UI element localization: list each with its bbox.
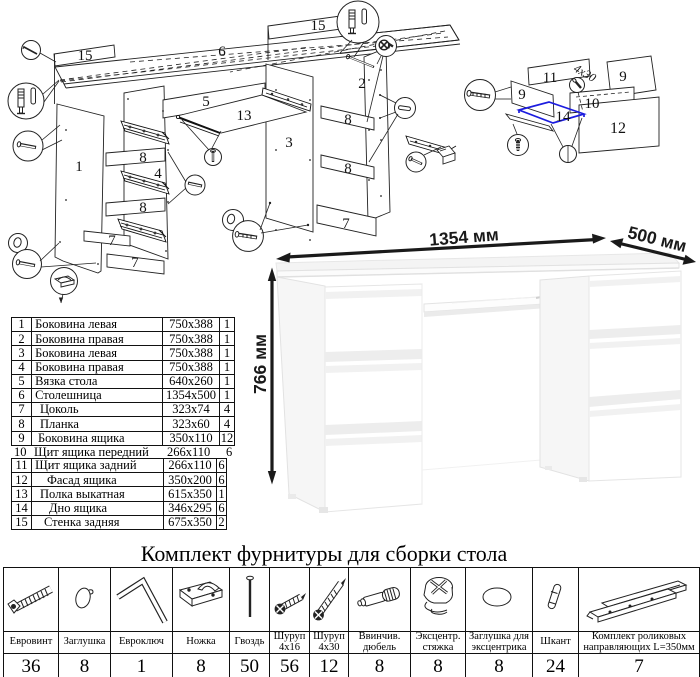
svg-text:11: 11 — [543, 70, 557, 86]
svg-text:7: 7 — [342, 216, 350, 232]
svg-text:7: 7 — [131, 255, 139, 271]
svg-text:8: 8 — [139, 150, 147, 166]
svg-text:12: 12 — [610, 120, 626, 137]
svg-text:8: 8 — [139, 200, 147, 216]
svg-text:5: 5 — [202, 94, 210, 110]
svg-text:8: 8 — [344, 112, 352, 128]
svg-text:7: 7 — [108, 233, 116, 249]
svg-text:9: 9 — [518, 87, 526, 103]
svg-text:766 мм: 766 мм — [250, 334, 270, 394]
svg-text:1: 1 — [75, 159, 83, 175]
svg-text:8: 8 — [344, 161, 352, 177]
svg-text:4: 4 — [154, 166, 162, 182]
svg-text:9: 9 — [619, 69, 627, 85]
svg-text:2: 2 — [358, 76, 366, 92]
svg-text:13: 13 — [237, 108, 252, 124]
svg-text:15: 15 — [311, 18, 326, 34]
svg-text:15: 15 — [78, 48, 93, 64]
svg-text:3: 3 — [285, 135, 293, 151]
svg-text:14: 14 — [556, 109, 572, 125]
svg-text:10: 10 — [585, 96, 600, 112]
svg-text:6: 6 — [218, 44, 226, 60]
